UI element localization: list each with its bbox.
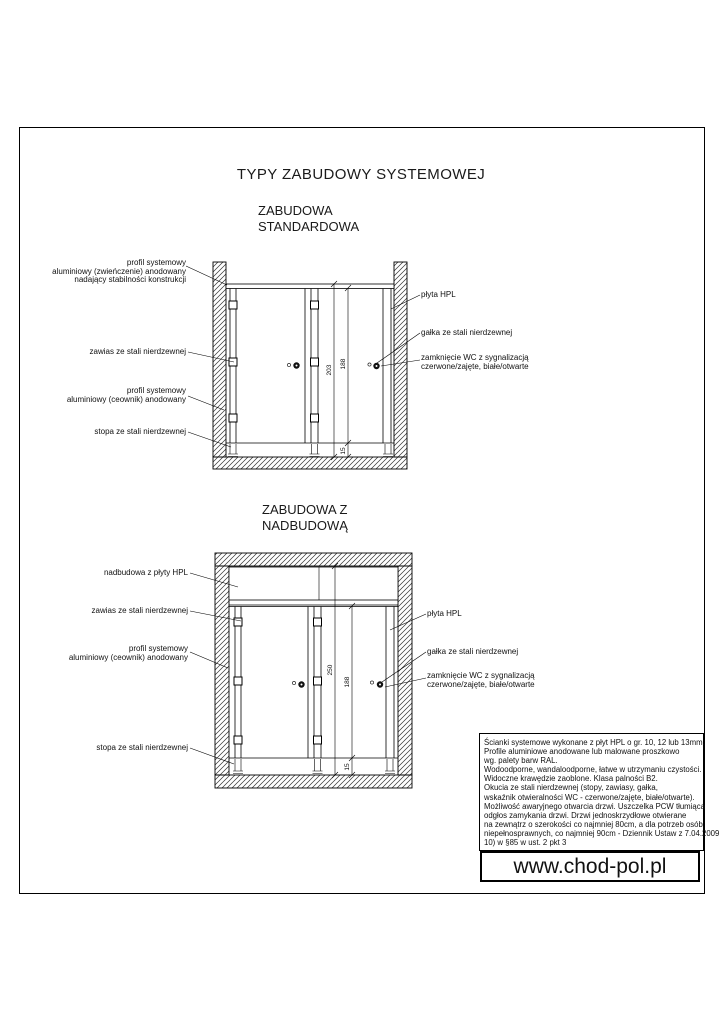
left-wall: [213, 262, 226, 457]
knob-and-lock-right-door: [368, 363, 380, 369]
spec-line: odgłos zamykania drzwi. Drzwi jednoskrzy…: [484, 811, 699, 820]
dim-door-height: 188: [344, 676, 351, 687]
spec-line: Okucia ze stali nierdzewnej (stopy, zawi…: [484, 783, 699, 792]
dim-foot-height: 15: [340, 447, 347, 455]
spec-line: 10) w §85 w ust. 2 pkt 3: [484, 838, 699, 847]
right-wall: [394, 262, 407, 457]
floor: [213, 457, 407, 469]
dimension-lines: 203 188 15: [326, 281, 351, 460]
label-foot: stopa ze stali nierdzewnej: [30, 428, 186, 437]
right-wall: [398, 566, 412, 775]
superstructure-panel: [229, 567, 398, 605]
drawing-sheet: TYPY ZABUDOWY SYSTEMOWEJ ZABUDOWA STANDA…: [0, 0, 724, 1024]
spec-line: wskaźnik otwieralności WC - czerwone/zaj…: [484, 793, 699, 802]
label-superstructure: nadbudowa z płyty HPL: [30, 569, 188, 578]
feet: [233, 759, 395, 774]
ceiling: [215, 553, 412, 566]
top-profile: [226, 284, 394, 289]
label-hpl-board: płyta HPL: [421, 291, 456, 300]
left-wall: [215, 566, 229, 775]
knob-and-lock-left-door: [287, 362, 299, 368]
dim-total-height: 203: [326, 364, 333, 375]
dim-foot-height: 15: [344, 763, 351, 771]
label-knob: gałka ze stali nierdzewnej: [427, 648, 518, 657]
label-wc-lock: zamknięcie WC z sygnalizacją czerwone/za…: [427, 672, 535, 689]
spec-line: Możliwość awaryjnego otwarcia drzwi. Usz…: [484, 802, 699, 811]
specification-box: Ścianki systemowe wykonane z płyt HPL o …: [479, 733, 704, 851]
label-channel-profile: profil systemowy aluminiowy (ceownik) an…: [30, 387, 186, 404]
knob-and-lock-left-door: [292, 681, 304, 687]
spec-line: Ścianki systemowe wykonane z płyt HPL o …: [484, 738, 699, 747]
dim-door-height: 188: [340, 358, 347, 369]
floor: [215, 775, 412, 788]
spec-line: wg. palety barw RAL.: [484, 756, 699, 765]
label-top-profile: profil systemowy aluminiowy (zwieńczenie…: [30, 259, 186, 285]
feet: [228, 444, 393, 457]
label-hinge: zawias ze stali nierdzewnej: [30, 348, 186, 357]
standard-drawing: 203 188 15: [186, 262, 420, 469]
dim-total-height: 250: [327, 664, 334, 675]
spec-line: na zewnątrz o szerokości co najmniej 80c…: [484, 820, 699, 829]
label-knob: gałka ze stali nierdzewnej: [421, 329, 512, 338]
spec-line: niepełnosprawnych, co najmniej 90cm - Dz…: [484, 829, 699, 838]
superstructure-drawing: 250 188 15: [190, 553, 426, 788]
label-hinge: zawias ze stali nierdzewnej: [30, 607, 188, 616]
label-foot: stopa ze stali nierdzewnej: [30, 744, 188, 753]
spec-line: Wodoodporne, wandaloodporne, łatwe w utr…: [484, 765, 699, 774]
label-hpl-board: płyta HPL: [427, 610, 462, 619]
website-url: www.chod-pol.pl: [514, 855, 667, 879]
label-channel-profile: profil systemowy aluminiowy (ceownik) an…: [30, 645, 188, 662]
label-wc-lock: zamknięcie WC z sygnalizacją czerwone/za…: [421, 354, 529, 371]
knob-and-lock-right-door: [370, 681, 383, 688]
title-block: www.chod-pol.pl: [480, 851, 700, 882]
spec-line: Profile aluminiowe anodowane lub malowan…: [484, 747, 699, 756]
spec-line: Widoczne krawędzie zaoblone. Klasa palno…: [484, 774, 699, 783]
